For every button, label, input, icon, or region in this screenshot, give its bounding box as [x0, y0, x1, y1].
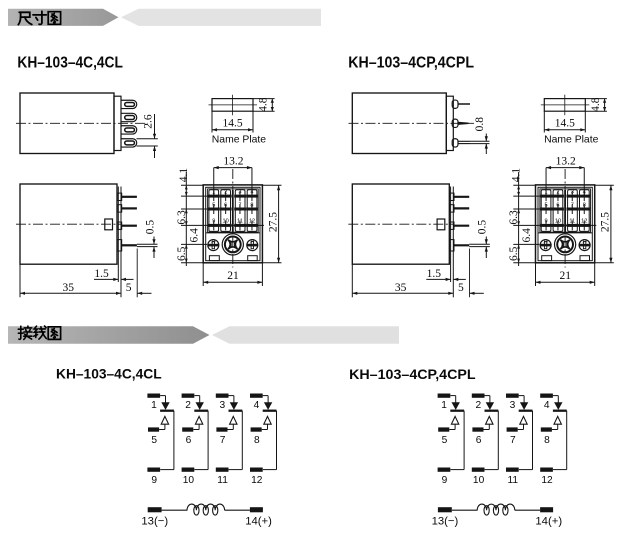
svg-text:4.1: 4.1	[511, 168, 523, 183]
svg-text:10: 10	[555, 219, 561, 225]
svg-text:3: 3	[238, 190, 241, 196]
svg-text:14: 14	[582, 239, 587, 244]
svg-text:5: 5	[442, 435, 448, 446]
svg-text:2: 2	[224, 190, 227, 196]
svg-text:10: 10	[473, 475, 485, 486]
svg-text:8: 8	[254, 435, 260, 446]
svg-text:6: 6	[224, 202, 227, 208]
svg-text:7: 7	[571, 202, 574, 208]
svg-text:6.4: 6.4	[521, 228, 533, 243]
svg-text:13.2: 13.2	[556, 156, 576, 168]
svg-text:KH–103–4C,4CL: KH–103–4C,4CL	[17, 55, 123, 72]
svg-text:21: 21	[560, 270, 572, 282]
svg-text:5: 5	[544, 202, 547, 208]
svg-text:8: 8	[583, 202, 586, 208]
svg-text:12: 12	[541, 475, 553, 486]
svg-text:8: 8	[544, 435, 550, 446]
svg-text:4.8: 4.8	[258, 97, 270, 112]
svg-text:14(+): 14(+)	[245, 515, 272, 527]
svg-text:2.6: 2.6	[142, 114, 154, 129]
svg-text:12: 12	[251, 475, 263, 486]
svg-text:4.8: 4.8	[590, 97, 602, 112]
svg-text:9: 9	[212, 219, 215, 225]
svg-text:12: 12	[581, 219, 587, 225]
svg-text:3: 3	[510, 400, 516, 411]
svg-text:10: 10	[183, 475, 195, 486]
svg-text:14.5: 14.5	[555, 118, 575, 130]
svg-text:35: 35	[63, 282, 75, 294]
svg-text:3: 3	[219, 400, 225, 411]
svg-text:2: 2	[556, 190, 559, 196]
svg-text:6.4: 6.4	[189, 228, 201, 243]
svg-text:13: 13	[543, 239, 548, 244]
svg-text:4.1: 4.1	[178, 168, 190, 183]
svg-text:6: 6	[556, 202, 559, 208]
svg-text:2: 2	[185, 400, 191, 411]
svg-text:7: 7	[510, 435, 516, 446]
svg-text:11: 11	[569, 219, 575, 225]
svg-text:13.2: 13.2	[223, 156, 243, 168]
svg-text:6.3: 6.3	[176, 210, 188, 225]
svg-text:13(−): 13(−)	[432, 515, 459, 527]
svg-text:35: 35	[395, 282, 407, 294]
svg-text:KH–103–4CP,4CPL: KH–103–4CP,4CPL	[348, 55, 474, 72]
svg-text:8: 8	[250, 202, 253, 208]
svg-text:KH–103–4C,4CL: KH–103–4C,4CL	[56, 367, 162, 382]
svg-text:21: 21	[227, 270, 239, 282]
svg-text:KH–103–4CP,4CPL: KH–103–4CP,4CPL	[349, 367, 476, 383]
svg-text:3: 3	[571, 190, 574, 196]
svg-text:11: 11	[217, 475, 228, 486]
svg-text:6.5: 6.5	[508, 246, 520, 261]
svg-text:27.5: 27.5	[600, 212, 612, 232]
svg-text:4: 4	[254, 400, 260, 411]
svg-text:Name Plate: Name Plate	[544, 134, 599, 145]
svg-text:2: 2	[475, 400, 481, 411]
svg-text:0.8: 0.8	[474, 117, 486, 132]
svg-text:1: 1	[151, 400, 157, 411]
svg-text:5: 5	[458, 282, 464, 294]
svg-text:6.5: 6.5	[176, 246, 188, 261]
svg-text:7: 7	[238, 202, 241, 208]
svg-text:12: 12	[249, 219, 255, 225]
svg-text:11: 11	[237, 219, 243, 225]
svg-text:0.5: 0.5	[477, 220, 489, 235]
svg-text:1: 1	[441, 400, 447, 411]
svg-text:9: 9	[442, 475, 448, 486]
svg-text:10: 10	[223, 219, 229, 225]
svg-text:5: 5	[126, 282, 132, 294]
svg-text:13(−): 13(−)	[141, 515, 168, 527]
svg-text:11: 11	[508, 475, 519, 486]
svg-text:14(+): 14(+)	[535, 515, 562, 527]
svg-text:27.5: 27.5	[267, 212, 279, 232]
svg-text:1.5: 1.5	[94, 268, 109, 280]
svg-text:4: 4	[544, 400, 550, 411]
svg-text:6.3: 6.3	[508, 210, 520, 225]
svg-text:5: 5	[151, 435, 157, 446]
svg-text:5: 5	[212, 202, 215, 208]
svg-text:6: 6	[186, 435, 192, 446]
svg-text:1.5: 1.5	[427, 268, 442, 280]
svg-text:0.5: 0.5	[144, 220, 156, 235]
svg-text:9: 9	[151, 475, 157, 486]
svg-text:14.5: 14.5	[222, 118, 242, 130]
svg-text:6: 6	[476, 435, 482, 446]
svg-text:Name Plate: Name Plate	[212, 134, 267, 145]
svg-text:13: 13	[211, 239, 216, 244]
svg-text:7: 7	[220, 435, 226, 446]
svg-text:14: 14	[250, 239, 255, 244]
svg-text:9: 9	[544, 219, 547, 225]
